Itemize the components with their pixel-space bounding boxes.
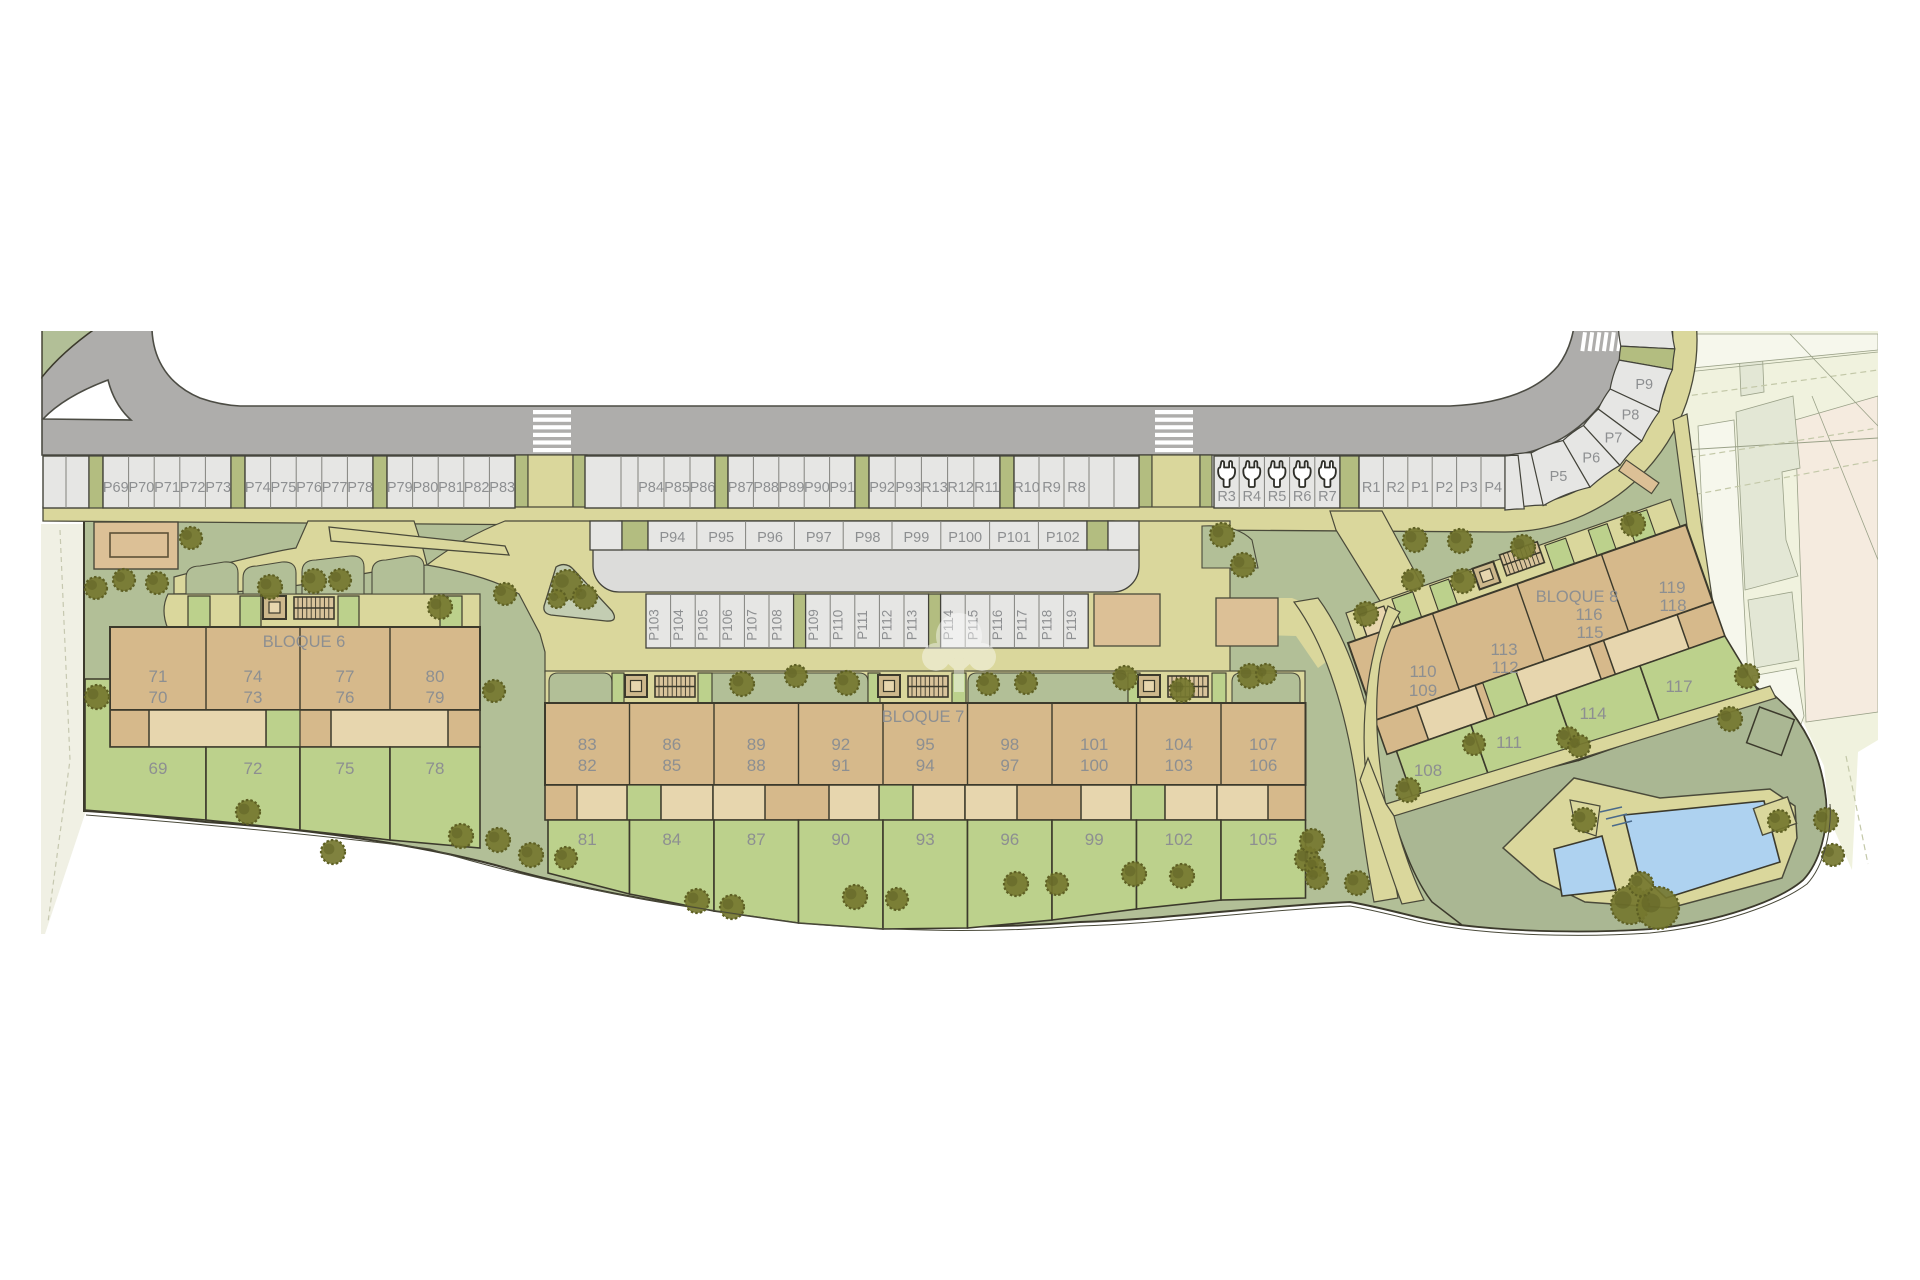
svg-text:106: 106 [1249,756,1277,775]
svg-text:73: 73 [244,688,263,707]
svg-text:R4: R4 [1243,489,1262,505]
svg-text:70: 70 [149,688,168,707]
svg-text:R5: R5 [1268,489,1287,505]
svg-text:P82: P82 [464,480,490,496]
svg-text:107: 107 [1249,735,1277,754]
svg-text:P3: P3 [1460,480,1478,496]
svg-text:P101: P101 [997,530,1031,546]
svg-text:91: 91 [831,756,850,775]
svg-text:P105: P105 [696,609,711,641]
svg-text:P90: P90 [804,480,830,496]
svg-text:100: 100 [1080,756,1108,775]
svg-text:P103: P103 [646,609,661,641]
svg-text:99: 99 [1085,830,1104,849]
svg-text:92: 92 [831,735,850,754]
svg-text:P4: P4 [1484,480,1502,496]
svg-text:P94: P94 [659,530,685,546]
svg-text:P85: P85 [664,480,690,496]
svg-text:P112: P112 [880,610,895,641]
svg-text:117: 117 [1665,677,1692,696]
svg-text:118: 118 [1659,596,1686,615]
svg-text:113: 113 [1490,640,1517,659]
svg-text:P83: P83 [489,480,515,496]
svg-text:R10: R10 [1013,480,1040,496]
svg-text:P97: P97 [806,530,832,546]
svg-text:P84: P84 [638,480,664,496]
svg-text:104: 104 [1165,735,1193,754]
svg-text:P88: P88 [753,480,779,496]
svg-text:94: 94 [916,756,935,775]
svg-text:98: 98 [1000,735,1019,754]
svg-text:69: 69 [149,759,168,778]
svg-text:P7: P7 [1605,431,1623,447]
svg-text:103: 103 [1165,756,1193,775]
svg-text:P76: P76 [296,480,322,496]
svg-text:P113: P113 [904,610,919,641]
svg-text:P5: P5 [1550,469,1568,485]
svg-text:108: 108 [1414,761,1442,780]
svg-text:P119: P119 [1064,610,1079,641]
svg-text:P107: P107 [745,609,760,641]
svg-text:82: 82 [578,756,597,775]
svg-text:R1: R1 [1362,480,1381,496]
svg-text:P109: P109 [806,609,821,641]
svg-text:84: 84 [662,830,681,849]
svg-text:BLOQUE 6: BLOQUE 6 [263,633,346,651]
svg-text:P98: P98 [855,530,881,546]
svg-text:74: 74 [244,667,263,686]
svg-text:P73: P73 [205,480,231,496]
svg-text:114: 114 [1579,704,1606,723]
svg-text:R12: R12 [947,480,974,496]
svg-text:71: 71 [149,667,168,686]
svg-text:P77: P77 [322,480,348,496]
svg-text:80: 80 [426,667,445,686]
svg-text:P2: P2 [1436,480,1454,496]
svg-text:93: 93 [916,830,935,849]
svg-text:101: 101 [1080,735,1108,754]
svg-text:P117: P117 [1015,610,1030,641]
svg-text:P96: P96 [757,530,783,546]
svg-text:P93: P93 [895,480,921,496]
svg-text:109: 109 [1409,681,1437,700]
svg-text:76: 76 [336,688,355,707]
svg-text:P9: P9 [1635,377,1653,393]
svg-text:P91: P91 [829,480,855,496]
svg-text:90: 90 [831,830,850,849]
svg-text:89: 89 [747,735,766,754]
svg-text:P106: P106 [720,609,735,641]
svg-text:88: 88 [747,756,766,775]
svg-text:75: 75 [336,759,355,778]
svg-text:R3: R3 [1217,489,1236,505]
svg-text:P108: P108 [769,609,784,641]
svg-text:102: 102 [1165,830,1193,849]
svg-text:P110: P110 [831,610,846,641]
svg-text:P89: P89 [779,480,805,496]
svg-text:P1: P1 [1411,480,1429,496]
svg-text:R13: R13 [921,480,948,496]
svg-text:P80: P80 [412,480,438,496]
svg-text:P99: P99 [903,530,929,546]
svg-text:P116: P116 [990,610,1005,641]
svg-text:83: 83 [578,735,597,754]
svg-text:P75: P75 [270,480,296,496]
svg-text:P69: P69 [103,480,129,496]
svg-text:111: 111 [1496,733,1522,752]
svg-text:P72: P72 [180,480,206,496]
svg-text:P104: P104 [671,609,686,641]
svg-text:116: 116 [1575,605,1602,624]
svg-text:96: 96 [1000,830,1019,849]
svg-text:P8: P8 [1622,408,1640,424]
svg-text:P78: P78 [347,480,373,496]
svg-text:119: 119 [1658,578,1685,597]
svg-text:R6: R6 [1293,489,1312,505]
svg-text:P6: P6 [1582,451,1600,467]
svg-text:112: 112 [1491,658,1518,677]
svg-text:R8: R8 [1067,480,1086,496]
svg-text:86: 86 [662,735,681,754]
svg-text:BLOQUE 7: BLOQUE 7 [882,708,965,726]
svg-text:110: 110 [1409,662,1436,681]
svg-text:R11: R11 [974,480,1000,496]
svg-text:P92: P92 [869,480,895,496]
svg-text:81: 81 [578,830,597,849]
svg-text:72: 72 [244,759,263,778]
svg-text:R2: R2 [1386,480,1405,496]
svg-text:87: 87 [747,830,766,849]
svg-text:P70: P70 [128,480,154,496]
svg-text:78: 78 [426,759,445,778]
svg-text:97: 97 [1000,756,1019,775]
svg-text:R9: R9 [1042,480,1061,496]
svg-text:BLOQUE 8: BLOQUE 8 [1536,588,1619,606]
svg-text:P118: P118 [1039,610,1054,641]
svg-text:R7: R7 [1318,489,1337,505]
svg-text:115: 115 [1576,623,1603,642]
svg-text:P86: P86 [690,480,716,496]
svg-text:P95: P95 [708,530,734,546]
svg-text:P102: P102 [1046,530,1080,546]
svg-text:P71: P71 [154,480,180,496]
svg-text:77: 77 [336,667,355,686]
svg-text:P74: P74 [245,480,271,496]
svg-text:P87: P87 [728,480,754,496]
svg-text:85: 85 [662,756,681,775]
svg-text:P100: P100 [948,530,982,546]
svg-text:95: 95 [916,735,935,754]
svg-text:79: 79 [426,688,445,707]
svg-text:105: 105 [1249,830,1277,849]
svg-text:P111: P111 [855,610,870,640]
svg-text:P79: P79 [387,480,413,496]
svg-text:P81: P81 [438,480,464,496]
